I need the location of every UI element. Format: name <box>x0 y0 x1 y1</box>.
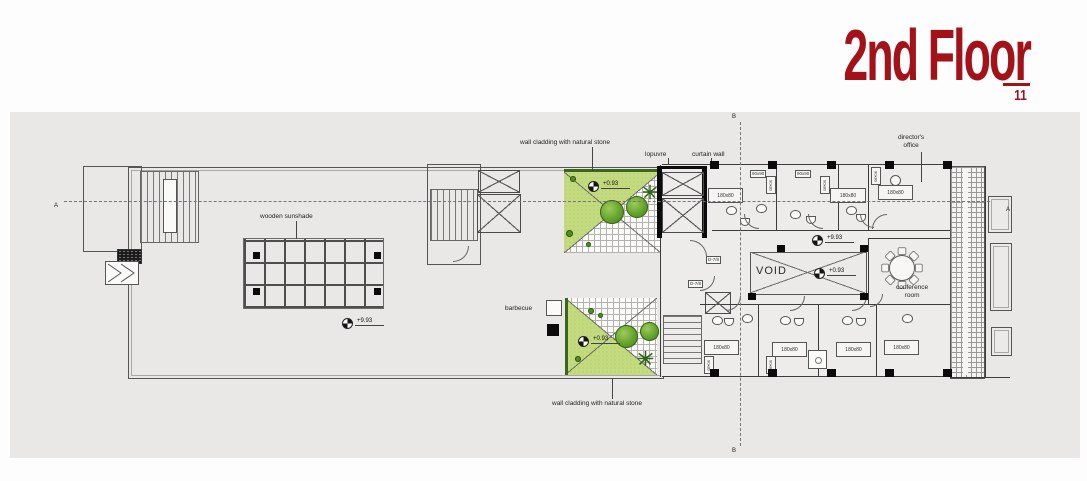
palm-tree <box>637 350 654 367</box>
balcony <box>990 243 1012 311</box>
column <box>827 161 836 169</box>
toilet <box>780 316 791 325</box>
toilet <box>756 204 767 213</box>
toilet <box>726 206 737 215</box>
shrub <box>566 230 573 237</box>
leader-line <box>921 152 922 182</box>
barbecue-grill <box>547 324 559 336</box>
column <box>885 369 894 377</box>
curtain-wall-label: curtain wall <box>692 151 725 159</box>
cabinet-tag: 90x80 <box>820 176 830 194</box>
director-office-label: director's office <box>898 134 924 150</box>
chair <box>890 175 901 186</box>
cabinet-tag: 90x90 <box>750 170 766 178</box>
toilet <box>842 316 853 325</box>
section-marker-b-top: B <box>732 114 736 121</box>
page-title: 2nd Floor <box>843 20 1030 92</box>
page-number: 11 <box>1014 87 1027 104</box>
stair-mid <box>430 189 478 241</box>
palm-tree <box>642 184 658 200</box>
void-label: VOID <box>756 265 787 277</box>
tree <box>600 200 624 224</box>
column <box>768 161 777 169</box>
cabinet-tag: 90x80 <box>766 176 776 194</box>
leader-line <box>592 147 593 171</box>
wall <box>662 164 952 165</box>
stair-landing <box>163 179 177 233</box>
level-marker-garden-lower: +0.93 <box>578 336 620 347</box>
core-wall <box>662 166 702 169</box>
annex-outline <box>83 166 142 252</box>
wall <box>758 305 759 377</box>
barbecue-label: barbecue <box>505 305 532 313</box>
shaft <box>662 172 704 196</box>
elevator-shaft <box>662 198 704 233</box>
bed: 180x80 <box>836 342 871 357</box>
hedge-strip <box>565 298 568 375</box>
column <box>710 161 719 169</box>
pergola-post <box>253 252 260 259</box>
benchmark-icon <box>342 318 353 329</box>
toilet <box>790 210 801 219</box>
level-marker-terrace: +9.93 <box>342 318 384 329</box>
shaft <box>478 170 520 193</box>
cladding-bottom-label: wall cladding with natural stone <box>552 400 642 408</box>
pergola-post <box>253 288 260 295</box>
wall <box>776 165 777 230</box>
column <box>748 293 756 300</box>
ramp-chevron <box>105 261 139 285</box>
column <box>768 369 777 377</box>
column <box>860 293 868 300</box>
level-marker-corridor: +9.93 <box>812 235 854 246</box>
wall <box>662 376 952 377</box>
conference-room-label: conference room <box>896 284 928 300</box>
pergola-post <box>374 288 381 295</box>
shrub <box>570 176 576 182</box>
facade-gap <box>963 168 968 375</box>
toilet <box>742 314 753 323</box>
shrub <box>598 313 603 318</box>
column <box>885 161 894 169</box>
elevator-shaft <box>477 194 521 233</box>
desk: 180x80 <box>878 185 913 200</box>
balcony <box>991 327 1012 356</box>
wall <box>950 377 1010 378</box>
bed: 180x80 <box>884 340 919 355</box>
shrub <box>575 356 581 362</box>
sunshade-label: wooden sunshade <box>260 213 313 221</box>
wooden-sunshade-grid <box>243 238 384 309</box>
level-marker-garden-upper: +0.93 <box>588 181 630 192</box>
benchmark-icon <box>814 268 825 279</box>
shrub <box>588 308 594 314</box>
shrub <box>586 242 591 247</box>
cabinet-tag: 90x80 <box>871 167 881 185</box>
section-marker-b-bottom: B <box>732 448 736 455</box>
cladding-top-label: wall cladding with natural stone <box>520 139 610 147</box>
column <box>827 369 836 377</box>
hedge-strip <box>564 169 661 172</box>
level-marker-void: +0.93 <box>814 268 856 279</box>
wall <box>712 230 952 231</box>
door-tag: D-7/8 <box>706 256 721 264</box>
cabinet-tag: 90x90 <box>795 170 811 178</box>
benchmark-icon <box>812 235 823 246</box>
facade-edge <box>985 166 986 377</box>
section-marker-a-left: A <box>54 203 58 210</box>
bed: 180x80 <box>704 340 739 355</box>
pergola-post <box>374 252 381 259</box>
wall <box>876 305 877 377</box>
benchmark-icon <box>588 181 599 192</box>
stair-core <box>663 315 702 364</box>
column <box>777 245 785 252</box>
title-underline <box>1003 83 1030 86</box>
column <box>943 369 952 377</box>
column <box>860 245 868 252</box>
drawing-sheet: 2nd Floor 11 wooden sunshade +9.93 +0.93 <box>0 0 1087 481</box>
toilet <box>712 316 723 325</box>
shower <box>808 350 827 369</box>
louvre-label: lopuvre <box>645 151 666 159</box>
leader-line <box>612 378 613 399</box>
barbecue-counter <box>546 300 562 316</box>
column <box>710 369 719 377</box>
wall <box>868 238 952 239</box>
toilet <box>902 314 913 323</box>
column <box>943 161 952 169</box>
section-line-a <box>64 201 990 202</box>
benchmark-icon <box>578 336 589 347</box>
balcony <box>988 196 1012 233</box>
leader-line <box>296 221 297 239</box>
section-marker-a-right: A <box>1006 207 1010 214</box>
tree <box>640 322 659 341</box>
bed: 180x80 <box>772 342 807 357</box>
wall <box>868 238 869 305</box>
section-line-b <box>740 122 741 446</box>
